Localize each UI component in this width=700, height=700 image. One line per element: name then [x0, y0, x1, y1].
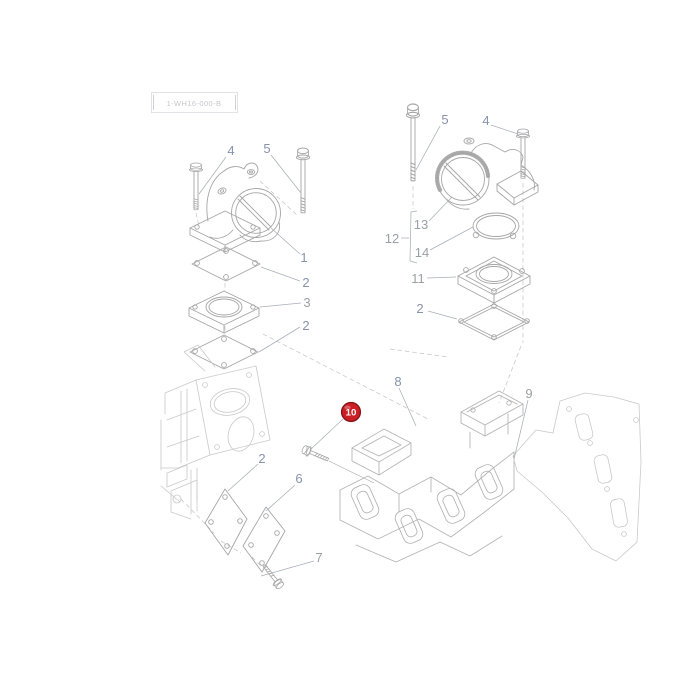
callout-6: 6 — [295, 471, 302, 486]
callout-7: 7 — [315, 550, 322, 565]
callout-8: 8 — [394, 374, 401, 389]
spacer-3 — [189, 291, 259, 333]
callout-1: 1 — [300, 250, 307, 265]
callout-9: 9 — [525, 386, 532, 401]
bolt-10 — [301, 444, 374, 483]
intake-elbow — [190, 163, 281, 252]
callout-2d: 2 — [258, 451, 265, 466]
oring-14 — [473, 213, 519, 239]
gasket-2a — [192, 247, 260, 281]
callout-2c: 2 — [416, 301, 423, 316]
exploded-parts-diagram: 1-WH16-000-B — [0, 0, 700, 700]
callout-2a: 2 — [302, 275, 309, 290]
parts-diagram-page: 1-WH16-000-B — [0, 0, 700, 700]
callout-12: 12 — [385, 231, 399, 246]
callout-2b: 2 — [302, 318, 309, 333]
leader-lines — [199, 125, 528, 576]
callout-5-left: 5 — [263, 141, 270, 156]
bolt-5-left — [296, 148, 309, 213]
callout-4-left: 4 — [227, 143, 234, 158]
highlighted-part-badge-10[interactable]: 10 — [342, 403, 361, 422]
engine-block — [161, 345, 270, 519]
drawing-ref-box: 1-WH16-000-B — [152, 93, 238, 113]
callout-14: 14 — [415, 245, 429, 260]
gasket-2b — [190, 335, 258, 369]
bolt-4-left — [189, 163, 202, 210]
left-assembly — [161, 148, 310, 590]
drawing-ref-text: 1-WH16-000-B — [167, 99, 222, 108]
bolt-5-right — [406, 104, 419, 181]
gasket-2d — [205, 489, 247, 555]
manifold-gasket — [513, 393, 641, 561]
cover-plate-6 — [243, 507, 285, 572]
callout-5-right: 5 — [441, 112, 448, 127]
callout-11: 11 — [411, 271, 425, 286]
bolt-7 — [260, 562, 285, 590]
gasket-2c — [459, 304, 530, 340]
assembly-axis-lines — [181, 181, 523, 567]
intake-manifold — [340, 391, 523, 562]
flange-11 — [458, 257, 530, 303]
callout-13: 13 — [414, 217, 428, 232]
badge-number[interactable]: 10 — [346, 408, 357, 419]
callout-3: 3 — [303, 295, 310, 310]
callout-4-right: 4 — [482, 113, 489, 128]
callout-labels: 4 5 1 2 3 2 5 4 13 12 14 11 2 8 9 2 6 7 — [227, 112, 532, 565]
